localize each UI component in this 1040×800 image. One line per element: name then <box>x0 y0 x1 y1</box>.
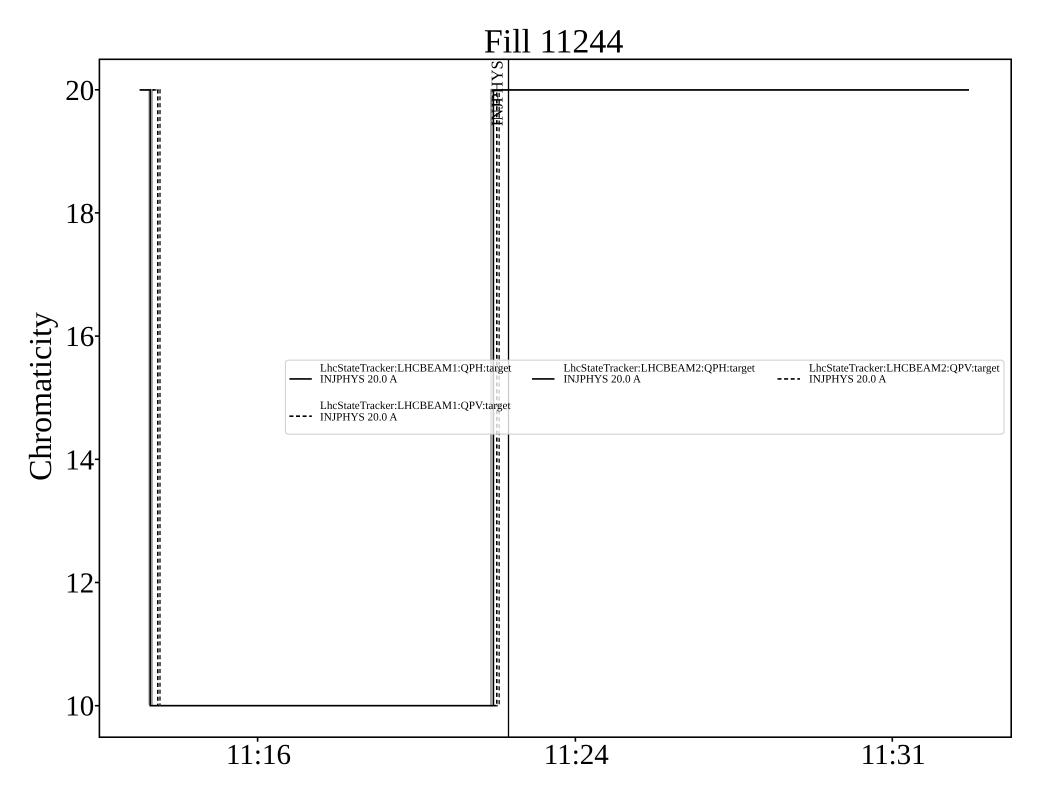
svg-text:12: 12 <box>65 568 94 600</box>
svg-text:INJPHYS: INJPHYS <box>488 60 507 126</box>
svg-text:11:16: 11:16 <box>226 739 291 771</box>
svg-text:18: 18 <box>65 198 94 230</box>
svg-text:Fill 11244: Fill 11244 <box>484 23 624 60</box>
svg-text:16: 16 <box>65 321 94 353</box>
svg-text:Chromaticity: Chromaticity <box>22 312 58 481</box>
svg-text:INJPHYS 20.0 A: INJPHYS 20.0 A <box>320 411 397 423</box>
svg-text:11:31: 11:31 <box>861 739 926 771</box>
svg-text:20: 20 <box>65 75 94 107</box>
svg-text:LhcStateTracker:LHCBEAM2:QPV:t: LhcStateTracker:LHCBEAM2:QPV:target <box>809 362 1000 374</box>
svg-text:INJPHYS 20.0 A: INJPHYS 20.0 A <box>564 374 641 386</box>
svg-text:11:24: 11:24 <box>544 739 609 771</box>
svg-text:14: 14 <box>65 444 95 476</box>
svg-text:INJPHYS 20.0 A: INJPHYS 20.0 A <box>320 374 397 386</box>
svg-text:10: 10 <box>65 691 94 723</box>
svg-text:INJPHYS 20.0 A: INJPHYS 20.0 A <box>809 374 886 386</box>
svg-text:LhcStateTracker:LHCBEAM1:QPH:t: LhcStateTracker:LHCBEAM1:QPH:target <box>320 362 512 374</box>
svg-text:LhcStateTracker:LHCBEAM1:QPV:t: LhcStateTracker:LHCBEAM1:QPV:target <box>320 400 511 412</box>
svg-text:LhcStateTracker:LHCBEAM2:QPH:t: LhcStateTracker:LHCBEAM2:QPH:target <box>564 362 756 374</box>
